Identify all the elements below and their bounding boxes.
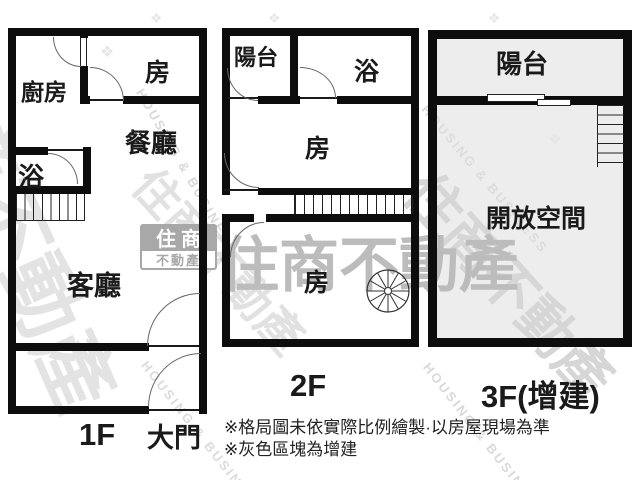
- room-label-balcony: 陽台: [234, 40, 278, 72]
- wall-segment: [428, 338, 632, 347]
- room-label-kitchen: 廚房: [21, 73, 67, 107]
- wall-segment: [8, 406, 149, 414]
- staircase: [597, 105, 624, 167]
- wall-segment: [290, 36, 298, 104]
- room-label-bath: 浴: [18, 157, 44, 194]
- room-label-balcony: 陽台: [496, 44, 548, 81]
- wall-segment: [428, 30, 632, 39]
- door-swing-arc: [48, 153, 78, 184]
- wall-segment: [258, 96, 300, 104]
- door-swing-arc: [300, 67, 336, 98]
- staircase: [16, 194, 85, 221]
- spiral-staircase: [366, 269, 410, 313]
- wall-segment: [8, 343, 149, 351]
- door-threshold: [224, 189, 258, 191]
- door-swing-arc: [53, 37, 81, 67]
- wall-segment: [222, 214, 230, 347]
- addition-note: ※灰色區塊為增建: [224, 435, 357, 460]
- wall-segment: [222, 339, 419, 347]
- watermark-glyph-4: ❖: [100, 42, 114, 62]
- wall-segment: [428, 30, 437, 347]
- watermark-glyph-2: ❖: [268, 10, 281, 27]
- room-label-living: 客廳: [67, 264, 121, 303]
- watermark-glyph-3: ❖: [488, 10, 501, 27]
- wall-segment: [8, 28, 207, 36]
- floor-label-2f: 2F: [290, 368, 326, 404]
- room-label-bedroom: 房: [304, 263, 329, 299]
- wall-segment: [8, 28, 16, 414]
- wall-segment: [8, 147, 48, 155]
- wall-segment: [222, 28, 419, 36]
- staircase: [294, 195, 413, 214]
- wall-segment: [80, 96, 90, 104]
- door-threshold: [149, 409, 199, 411]
- door-swing-arc: [147, 293, 200, 346]
- wall-segment: [123, 96, 199, 104]
- window-line: [86, 38, 87, 66]
- window: [537, 99, 571, 106]
- room-label-dining: 餐廳: [125, 123, 177, 160]
- wall-segment: [623, 30, 632, 347]
- floor-label-3f: 3F(增建): [481, 371, 600, 416]
- wall-segment: [258, 188, 411, 195]
- wall-segment: [222, 214, 254, 222]
- wall-segment: [411, 28, 419, 347]
- door-threshold: [48, 149, 83, 151]
- room-label-bedroom: 房: [305, 129, 330, 165]
- wall-segment: [337, 96, 411, 104]
- door-swing-arc: [90, 67, 124, 101]
- door-swing-arc: [148, 353, 201, 407]
- room-label-bath: 浴: [354, 52, 379, 88]
- watermark-glyph-1: ❖: [150, 10, 163, 27]
- room-label-open-space: 開放空間: [486, 199, 586, 235]
- watermark-glyph-5: ❖: [548, 130, 562, 150]
- floor-label-1f: 1F: [79, 417, 115, 453]
- floor-plan-image: 住商不動產 住商不動產 住商不動產 HOUSING & BUSINESS HOU…: [0, 0, 640, 480]
- room-label-bedroom: 房: [145, 53, 170, 89]
- wall-segment: [266, 214, 411, 222]
- entrance-label: 大門: [147, 416, 201, 455]
